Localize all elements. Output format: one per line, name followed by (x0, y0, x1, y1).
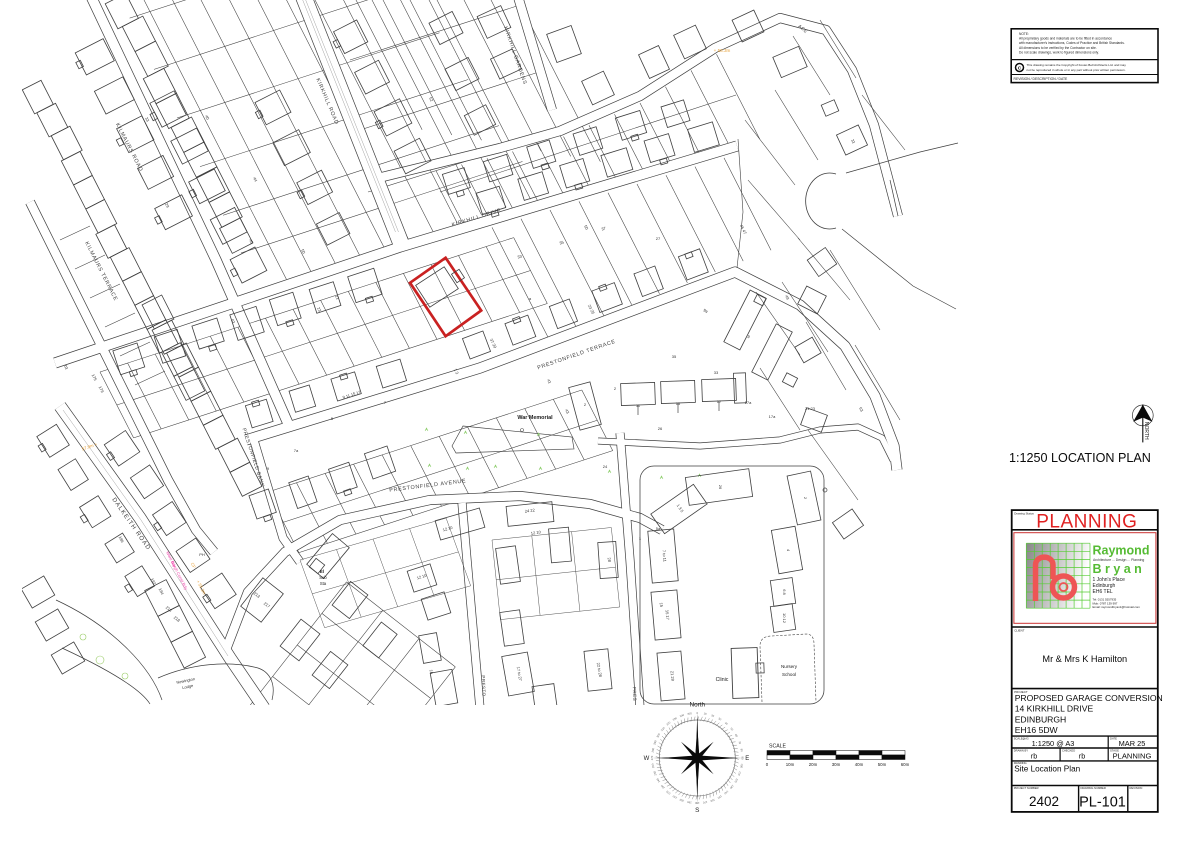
svg-text:B r y a n: B r y a n (1093, 562, 1142, 576)
svg-text:Raymond: Raymond (1093, 544, 1150, 558)
svg-text:NOTE:: NOTE: (1019, 32, 1029, 36)
svg-text:SCALE: SCALE (769, 744, 787, 750)
svg-text:with manufacturer's instructio: with manufacturer's instructions, Codes … (1019, 41, 1125, 45)
svg-text:Email: raymondbryan1@hotmail.c: Email: raymondbryan1@hotmail.com (1093, 605, 1141, 609)
svg-text:School: School (782, 672, 796, 677)
svg-text:Site Location Plan: Site Location Plan (1014, 765, 1080, 774)
svg-text:17: 17 (717, 399, 722, 404)
svg-text:DATE: DATE (1110, 736, 1117, 740)
svg-text:DRAWN BY: DRAWN BY (1014, 748, 1029, 752)
svg-text:All proprietary goods and mate: All proprietary goods and materials are … (1019, 37, 1112, 41)
svg-text:PRES: PRES (632, 687, 637, 701)
svg-text:El: El (320, 569, 324, 574)
svg-text:rb: rb (1031, 751, 1037, 760)
svg-text:PRESTO: PRESTO (481, 675, 487, 696)
svg-text:DRAWING NUMBER: DRAWING NUMBER (1081, 786, 1106, 790)
svg-text:All dimensions to be verified: All dimensions to be verified by the Con… (1019, 46, 1097, 50)
svg-text:Nursery: Nursery (781, 664, 798, 669)
svg-text:E: E (745, 756, 749, 762)
svg-text:rb: rb (1079, 751, 1085, 760)
svg-text:26: 26 (658, 426, 663, 431)
svg-text:not be reproduced in whole or: not be reproduced in whole or in any par… (1027, 68, 1126, 72)
svg-text:7a: 7a (294, 448, 299, 453)
svg-text:REVISION / DESCRIPTION / D: REVISION / DESCRIPTION / DATE (1014, 77, 1069, 81)
svg-text:Clinic: Clinic (716, 677, 729, 683)
svg-text:PLANNING: PLANNING (1113, 751, 1152, 760)
svg-text:REVISION: REVISION (1130, 786, 1143, 790)
svg-text:CHECKED: CHECKED (1062, 748, 1075, 752)
svg-text:SCALE@A3: SCALE@A3 (1014, 736, 1029, 740)
svg-text:MAR 25: MAR 25 (1119, 739, 1146, 748)
svg-text:17a: 17a (769, 414, 776, 419)
svg-text:26: 26 (718, 485, 723, 490)
svg-text:Do not scale drawings, work to: Do not scale drawings, work to figured d… (1019, 51, 1099, 55)
svg-text:14 KIRKHILL DRIVE: 14 KIRKHILL DRIVE (1015, 704, 1094, 714)
svg-text:EDINBURGH: EDINBURGH (1015, 714, 1067, 724)
svg-text:27: 27 (656, 236, 661, 241)
svg-text:PROJECT NUMBER: PROJECT NUMBER (1014, 786, 1039, 790)
svg-text:33: 33 (714, 370, 719, 375)
svg-text:5a: 5a (656, 526, 661, 531)
svg-text:270: 270 (650, 755, 654, 760)
svg-text:90: 90 (740, 757, 744, 760)
svg-text:W: W (644, 756, 650, 762)
svg-text:War Memorial: War Memorial (517, 415, 553, 421)
svg-text:60m: 60m (901, 762, 910, 767)
svg-text:15 17: 15 17 (665, 610, 671, 621)
svg-text:S: S (695, 807, 699, 814)
svg-text:10 12: 10 12 (782, 613, 787, 624)
svg-text:EH16 5DW: EH16 5DW (1015, 725, 1059, 735)
svg-text:CLIENT: CLIENT (1014, 628, 1025, 632)
svg-text:Mr & Mrs K Hamilton: Mr & Mrs K Hamilton (1042, 654, 1127, 664)
svg-text:6 8: 6 8 (782, 589, 787, 595)
svg-text:2402: 2402 (1029, 794, 1059, 809)
svg-text:17a: 17a (745, 400, 752, 405)
svg-text:40m: 40m (855, 762, 864, 767)
svg-text:21 23: 21 23 (805, 406, 816, 411)
svg-text:Sub: Sub (319, 575, 327, 580)
svg-text:PH: PH (199, 552, 205, 557)
svg-text:24: 24 (603, 464, 608, 469)
svg-text:+ 58.3m: + 58.3m (714, 48, 731, 53)
svg-text:50m: 50m (878, 762, 887, 767)
svg-text:21 29: 21 29 (670, 671, 676, 682)
svg-text:PROPOSED GARAGE CONVERSION: PROPOSED GARAGE CONVERSION (1015, 693, 1163, 703)
svg-text:Drawing Status: Drawing Status (1014, 512, 1034, 516)
svg-text:180: 180 (695, 801, 700, 805)
svg-text:North: North (689, 702, 705, 709)
svg-text:10m: 10m (786, 762, 795, 767)
svg-text:PL-101: PL-101 (1079, 795, 1126, 811)
svg-text:1:1250 LOCATION PLAN: 1:1250 LOCATION PLAN (1009, 451, 1151, 465)
svg-text:1:1250 @ A3: 1:1250 @ A3 (1032, 739, 1075, 748)
svg-text:15: 15 (676, 401, 681, 406)
svg-text:NORTH: NORTH (1143, 422, 1149, 440)
svg-text:This drawing remains the Copyr: This drawing remains the Copyright of Fo… (1027, 63, 1127, 67)
svg-text:C: C (1018, 65, 1022, 71)
svg-text:20m: 20m (809, 762, 818, 767)
svg-text:EH6 TEL: EH6 TEL (1093, 589, 1113, 595)
svg-text:Sta: Sta (320, 581, 327, 586)
svg-text:35: 35 (672, 354, 677, 359)
svg-text:30m: 30m (832, 762, 841, 767)
